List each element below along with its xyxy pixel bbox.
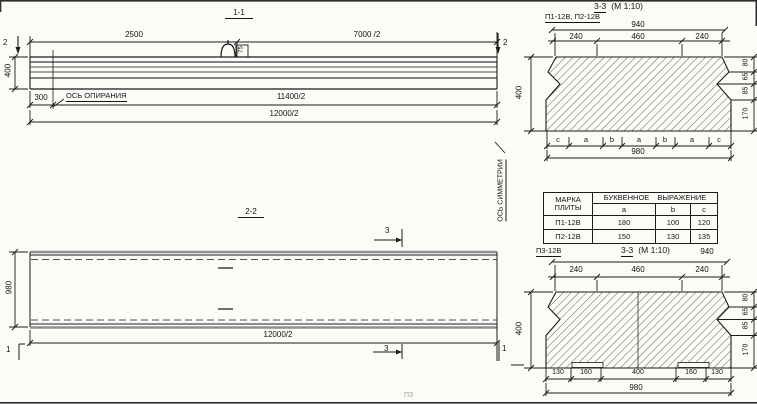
plate-side-edges	[30, 252, 497, 361]
dim-460: 460	[616, 265, 660, 274]
plate-edge-lines	[30, 255, 497, 324]
plate-marks-label: П1-12В, П2-12В	[545, 12, 600, 23]
dim-line-940	[549, 259, 730, 291]
bottom-recess-left	[572, 363, 603, 368]
cut-mark-lines	[19, 229, 524, 365]
dim-band-85: 85	[742, 318, 751, 334]
table-head-mark: МАРКА ПЛИТЫ	[544, 193, 593, 216]
dim-band-170: 170	[742, 104, 751, 124]
cross-section-hatched	[546, 292, 731, 368]
dim-980: 980	[616, 147, 660, 156]
dim-980: 980	[614, 383, 658, 392]
table-row: П2-12В 150 130 135	[544, 230, 718, 244]
symmetry-axis-text: ОСЬ СИММЕТРИИ	[498, 159, 507, 221]
dim-940: 940	[690, 247, 724, 256]
beam-inner-thin-lines	[30, 67, 497, 72]
cut-mark-2-lines	[18, 33, 498, 52]
cut-marker-3-bottom: 3	[384, 344, 388, 353]
title-number: 3-3	[621, 245, 633, 257]
dim-7000-2: 7000 /2	[338, 30, 396, 39]
title-scale: (М 1:10)	[638, 245, 670, 257]
letter-values-table: МАРКА ПЛИТЫ БУКВЕННОЕ ВЫРАЖЕНИЕ a b c П1…	[543, 192, 718, 244]
cut-marker-2-right: 2	[503, 38, 507, 47]
bottom-recess-right	[678, 363, 709, 368]
dim-460: 460	[616, 32, 660, 41]
cross-section-hatched	[546, 57, 731, 131]
dim-11400-2: 11400/2	[262, 92, 320, 101]
table-cell-a: 180	[593, 216, 656, 230]
plate-mark-label: П3-12В	[536, 246, 561, 257]
letter-a-3: a	[684, 135, 700, 144]
letter-a-2: a	[631, 135, 647, 144]
section-2-2-title: 2-2	[238, 207, 264, 218]
table-col-c: c	[691, 204, 718, 216]
symmetry-axis-label: ОСЬ СИММЕТРИИ	[497, 145, 506, 237]
table-head-expression: БУКВЕННОЕ ВЫРАЖЕНИЕ	[593, 193, 718, 204]
dim-400-vertical: 400	[515, 319, 524, 339]
table-cell-mark: П1-12В	[544, 216, 593, 230]
dim-400-vertical: 400	[4, 61, 13, 81]
drawing-sheet: 1-1 2500 7000 /2 2 2 400 300 ОСЬ ОПИРАНИ…	[0, 0, 757, 404]
lifting-loop	[221, 40, 235, 57]
dim-240-left: 240	[554, 265, 598, 274]
letter-c-2: c	[711, 135, 727, 144]
letter-c-1: c	[550, 135, 566, 144]
dim-160-right: 160	[679, 369, 703, 377]
table-cell-a: 150	[593, 230, 656, 244]
dim-240-left: 240	[554, 32, 598, 41]
dim-2500: 2500	[108, 30, 160, 39]
section-2-2-linework	[9, 229, 524, 365]
plate-mid-dashes	[218, 268, 233, 309]
dim-band-170: 170	[742, 340, 751, 360]
dim-400-bottom: 400	[626, 369, 650, 377]
plate-hidden-dashed-lines	[31, 260, 497, 321]
dim-300: 300	[29, 93, 53, 102]
table-cell-b: 100	[656, 216, 691, 230]
dim-400-vertical: 400	[515, 83, 524, 103]
cut-marker-3-top: 3	[385, 226, 389, 235]
dim-940: 940	[616, 20, 660, 29]
plate-thick-edges	[30, 252, 497, 328]
letter-a-1: a	[578, 135, 594, 144]
table-cell-mark: П2-12В	[544, 230, 593, 244]
dim-12000-2-plan: 12000/2	[248, 330, 308, 339]
dim-line-top	[27, 32, 500, 57]
dim-12000-2: 12000/2	[254, 109, 314, 118]
loop-tag: 75	[238, 42, 247, 58]
cut-marker-1-right: 1	[502, 344, 506, 353]
letter-b-1: b	[604, 135, 620, 144]
beam-inner-thick-lines	[30, 62, 497, 78]
dim-130-left: 130	[546, 369, 570, 377]
section-1-1-title: 1-1	[225, 8, 253, 19]
table-col-b: b	[656, 204, 691, 216]
dim-130-right: 130	[705, 369, 729, 377]
scan-artifact-text: ПЗ	[404, 392, 413, 399]
table-cell-c: 120	[691, 216, 718, 230]
dim-240-right: 240	[680, 32, 724, 41]
table-cell-c: 135	[691, 230, 718, 244]
cut-mark-2-arrows	[16, 47, 501, 54]
title-scale: (М 1:10)	[611, 1, 643, 13]
cut-marker-1-left: 1	[6, 345, 10, 354]
dim-980-vertical: 980	[5, 278, 14, 298]
dim-band-85: 85	[742, 83, 751, 99]
dim-160-left: 160	[574, 369, 598, 377]
dim-240-right: 240	[680, 265, 724, 274]
table-head-mark-line2: ПЛИТЫ	[555, 203, 582, 212]
section-3-3-top-title: 3-3 (М 1:10)	[594, 1, 643, 13]
support-axis-label: ОСЬ ОПИРАНИЯ	[66, 91, 127, 102]
cut-marker-2-left: 2	[3, 38, 7, 47]
letter-b-2: b	[657, 135, 673, 144]
section-3-3-bottom-title: 3-3 (М 1:10)	[621, 245, 670, 257]
table-cell-b: 130	[656, 230, 691, 244]
table-col-a: a	[593, 204, 656, 216]
table-row: П1-12В 180 100 120	[544, 216, 718, 230]
dim-line-240-460-240	[548, 274, 730, 291]
